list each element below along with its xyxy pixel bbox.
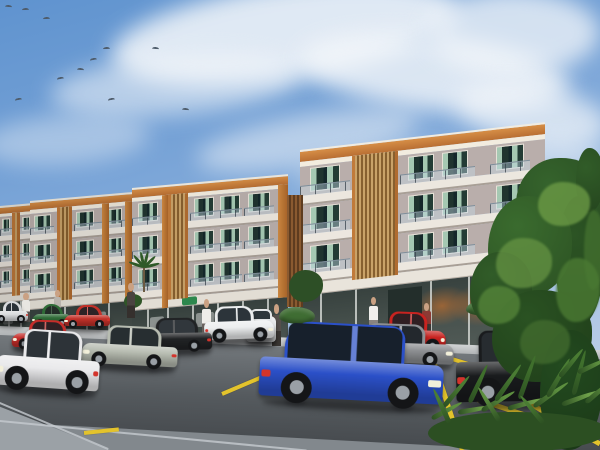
fern-base (428, 412, 600, 450)
fern-frond (517, 355, 537, 400)
fern-frond (584, 375, 600, 405)
architectural-rendering (0, 0, 600, 450)
foreground-ferns (0, 0, 600, 450)
